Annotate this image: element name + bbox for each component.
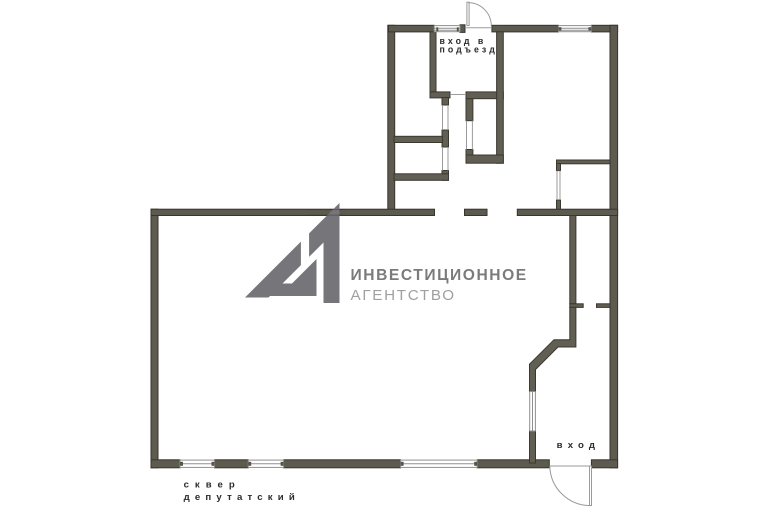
svg-text:вход: вход — [557, 440, 601, 451]
svg-text:АГЕНТСТВО: АГЕНТСТВО — [351, 287, 456, 304]
svg-text:депутатский: депутатский — [184, 492, 300, 503]
svg-text:подъезд: подъезд — [440, 44, 498, 54]
svg-text:сквер: сквер — [184, 480, 241, 491]
svg-text:ИНВЕСТИЦИОННОЕ: ИНВЕСТИЦИОННОЕ — [351, 267, 528, 284]
